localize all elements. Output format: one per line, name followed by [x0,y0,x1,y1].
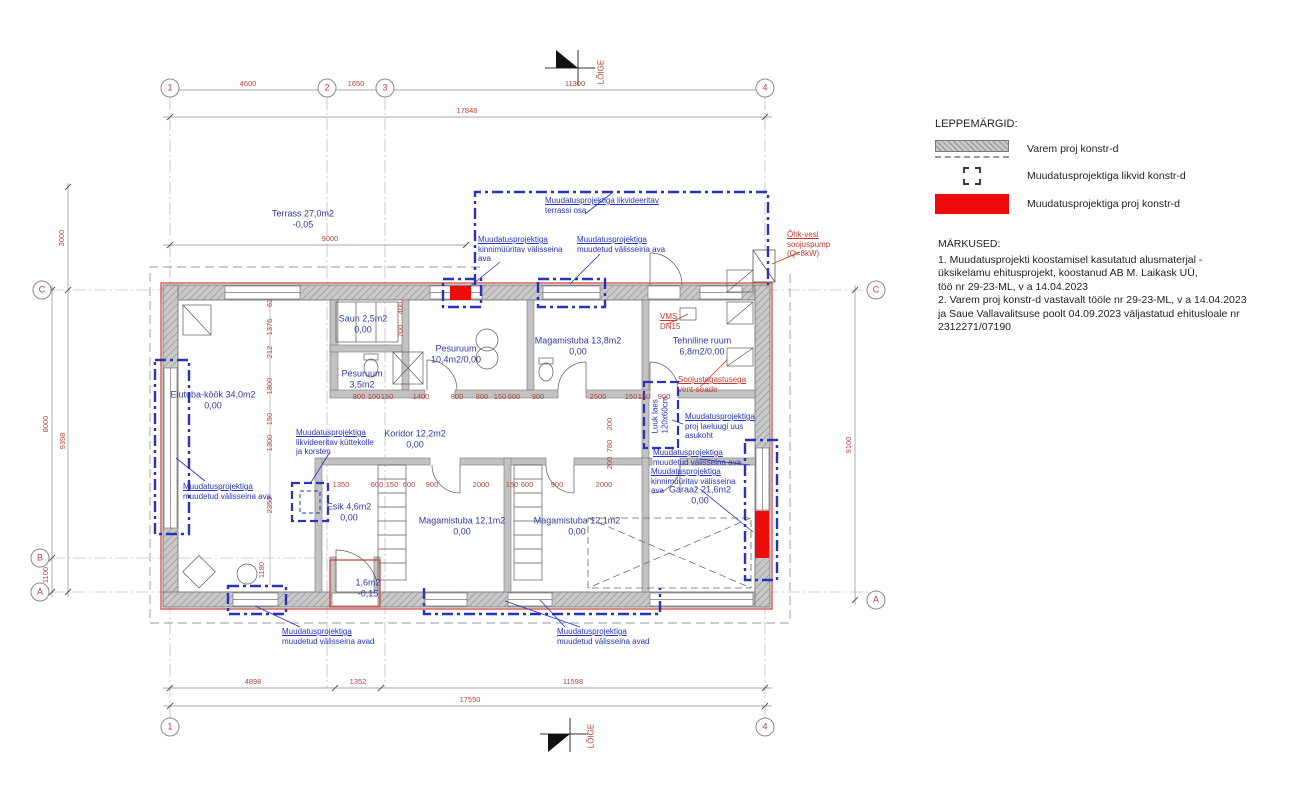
dimension-label: 1800 [266,378,274,395]
dimension-label: 9398 [59,433,67,450]
room-label: Terrass 27,0m2-0,05 [272,209,334,230]
grid-bubble: A [867,591,886,610]
legend-item: Muudatusprojektiga likvid konstr-d [935,167,1295,185]
dimension-label: 200 [606,457,614,470]
dimension-label: 600 [403,481,416,489]
dimension-label: 900 [551,481,564,489]
annotation-label: Muudatusprojektigamuudetud välisseina av… [577,235,665,254]
dimension-label: 800 [451,393,464,401]
drawing-sheet: Terrass 27,0m2-0,05Elutuba-köök 34,0m20,… [0,0,1308,800]
dimension-label: 11300 [565,80,585,88]
hatched-wall-symbol [935,140,1009,158]
chimney-removal-mark [292,483,328,521]
grid-bubble: B [31,549,50,568]
dimension-label: 700 [397,325,405,338]
grid-bubble: 1 [161,79,180,98]
notes-line: 2. Varem proj konstr-d vastavalt tööle n… [938,294,1308,308]
dimension-label: 200 [606,418,614,431]
grid-bubble: 4 [756,718,775,737]
dimension-label: 1400 [413,393,430,401]
dimension-label: 9000 [322,235,339,243]
heat-pump [753,250,775,282]
dimension-label: 150 [381,393,394,401]
legend-item: Varem proj konstr-d [935,140,1295,158]
dimension-label: 1352 [350,678,367,686]
grid-bubble: C [33,281,52,300]
annotation-label: Muudatusprojektigamuudetud välisseina av… [653,448,741,467]
dimension-label: 150 [266,413,274,426]
notes-line: 2312271/07190 [938,321,1308,335]
dimension-label: 150 [625,393,638,401]
grid-bubble: 2 [318,79,337,98]
annotation-label: Muudatusprojektigaproj laeluugi uusasuko… [685,412,755,441]
legend-item-label: Varem proj konstr-d [1027,143,1118,155]
dimension-label: 2000 [596,481,613,489]
notes-line: üksikelamu ehitusprojekt, koostanud AB M… [938,267,1308,281]
dimension-label: 780 [606,440,614,453]
dimension-label: 1180 [258,562,266,578]
red-leader-lines [668,252,800,387]
dimension-label: 800 [353,393,366,401]
grid-bubble: A [31,583,50,602]
dimension-label: 17848 [457,107,478,115]
room-label: 1,6m2-0,15 [355,578,380,599]
dimension-label: 600 [521,481,534,489]
room-label: Saun 2,5m20,00 [339,314,388,335]
dimension-label: 800 [476,393,489,401]
legend-item: Muudatusprojektiga proj konstr-d [935,194,1295,214]
dimension-label: 900 [532,393,545,401]
room-label: Tehniline ruum6,8m2/0,00 [673,336,732,357]
annotation-label: Õhk-vesisoojuspump(Q=8kW) [787,230,830,259]
annotation-label: Muudatusprojektigamuudetud välisseina av… [183,482,271,501]
dimension-label: 11598 [563,678,583,686]
dimension-label: 4898 [245,678,262,686]
dimension-label: 900 [426,481,439,489]
dimension-label: 1350 [333,481,350,489]
property-dashed-outline [150,267,790,623]
notes-line: 1. Muudatusprojekti koostamisel kasutatu… [938,254,1308,268]
dimension-label: 150 [638,393,651,401]
dimension-label: 150 [386,481,399,489]
annotation-label: Muudatusprojektigamuudetud välisseina av… [557,627,650,646]
annotation-label: Muudatusprojektigamuudetud välisseina av… [282,627,375,646]
dimension-label: 62 [266,299,274,307]
legend-item-label: Muudatusprojektiga proj konstr-d [1027,198,1180,210]
notes-line: töö nr 29-23-ML, v a 14.04.2023 [938,281,1308,295]
notes: MÄRKUSED: 1. Muudatusprojekti koostamise… [938,238,1308,335]
dimension-label: 3000 [58,230,66,247]
annotation-label: VMSDN15 [660,312,680,331]
grid-bubble: 1 [161,718,180,737]
dimension-label: 1300 [266,435,274,452]
annotation-label: LÕIGE [586,724,596,748]
red-perimeter [161,283,772,609]
annotation-label: Luuk laes120x60cm [651,397,670,434]
room-label: Magamistuba 12,1m20,00 [534,516,621,537]
dimension-label: 2000 [473,481,490,489]
section-flag-bottom [540,718,588,752]
room-label: Elutuba-köök 34,0m20,00 [170,390,255,411]
room-label: Koridor 12,2m20,00 [384,429,446,450]
annotation-label: Muudatusprojektiga likvideeritavterrassi… [545,196,659,215]
dimension-label: 1650 [348,80,365,88]
room-label: Magamistuba 13,8m20,00 [535,336,622,357]
dimension-label: 150 [494,393,507,401]
legend-item-label: Muudatusprojektiga likvid konstr-d [1027,170,1186,182]
annotation-label: Soojustagastusegavent-seade [678,375,746,394]
legend: LEPPEMÄRGID: Varem proj konstr-d Muudatu… [935,118,1295,223]
dimension-label: 400 [397,302,405,315]
dashed-outline-symbol [963,167,981,185]
dimension-label: 100 [368,393,381,401]
dimension-label: 600 [508,393,521,401]
room-label: Pesuruum10,4m2/0,00 [431,344,481,365]
annotation-label: Muudatusprojektigakinnimüüritav välissei… [478,235,562,264]
dimension-label: 212 [266,346,274,359]
annotation-label: LÕIGE [596,60,606,84]
dimension-label: 8000 [42,416,50,433]
dimension-label: 600 [371,481,384,489]
dimension-label: 17550 [460,696,481,704]
notes-title: MÄRKUSED: [938,238,1308,252]
dimension-label: 9100 [845,437,853,454]
red-fill-symbol [935,194,1009,214]
room-label: Magamistuba 12,1m20,00 [419,516,506,537]
dimension-label: 1376 [266,319,274,336]
dimension-label: 150 [506,481,519,489]
dimension-label: 4600 [240,80,257,88]
grid-bubble: 4 [756,79,775,98]
grid-bubble: C [867,281,886,300]
notes-line: ja Saue Vallavalitsuse poolt 04.09.2023 … [938,308,1308,322]
annotation-label: Muudatusprojektigalikvideeritav küttekol… [296,428,374,457]
dimension-label: 2500 [590,393,607,401]
room-label: Esik 4,6m20,00 [327,502,372,523]
dimension-label: 1100 [42,567,50,583]
grid-bubble: 3 [376,79,395,98]
legend-title: LEPPEMÄRGID: [935,118,1295,130]
room-label: Pesuruum3,5m2 [341,369,382,390]
annotation-label: Muudatusprojektigakinnimüüritav välissei… [651,467,735,496]
